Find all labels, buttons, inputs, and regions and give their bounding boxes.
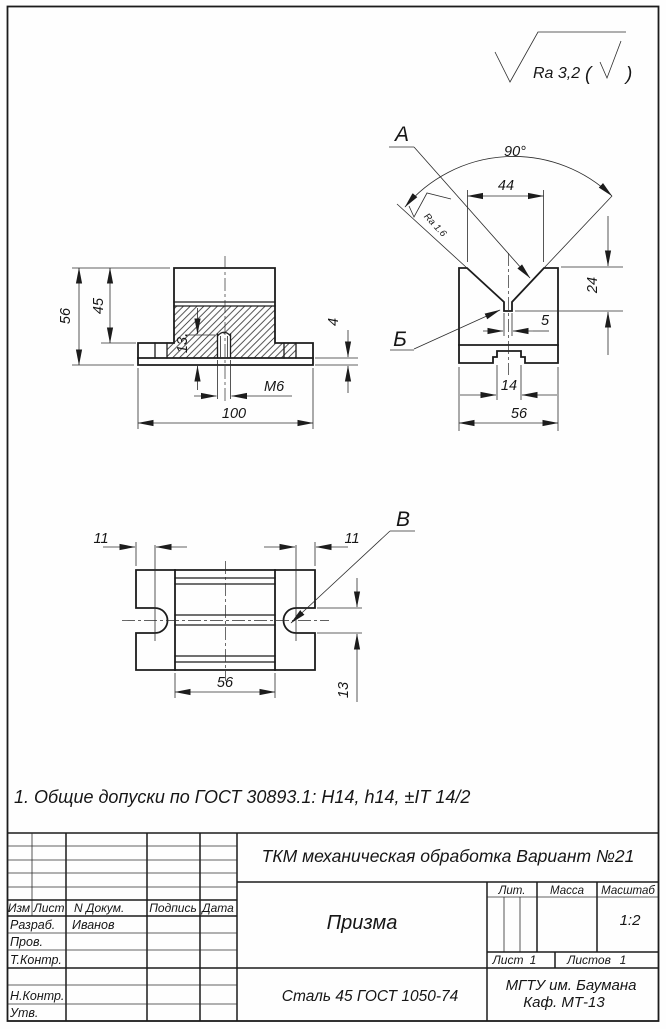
label-text: В <box>396 508 410 531</box>
dim-front-width: 100 <box>138 368 313 429</box>
dim-top-width: 56 <box>175 673 275 698</box>
department: Каф. МТ-13 <box>523 994 605 1011</box>
project-title: ТКМ механическая обработка Вариант №21 <box>262 846 635 866</box>
v-face-roughness: Ra 1.6 <box>409 193 451 240</box>
dim-text: 13 <box>336 682 352 698</box>
dim-front-body-height: 45 <box>91 268 136 343</box>
dim-relief-groove: 5 <box>483 313 550 336</box>
side-view: 90° 44 24 5 <box>389 123 623 431</box>
dim-text: 56 <box>217 675 234 691</box>
drawing-sheet: Ra 3,2 ( ) 56 <box>0 0 666 1029</box>
mass-label: Масса <box>550 885 584 897</box>
leader-line <box>291 531 390 623</box>
sheets-label: Листов <box>566 953 611 967</box>
dim-base-thickness: 4 <box>315 318 358 393</box>
dim-front-height: 56 <box>58 268 170 365</box>
dim-text: 56 <box>511 406 528 422</box>
leader-line <box>414 310 500 349</box>
title-block: Изм Лист N Докум. Подпись Дата Разраб. И… <box>8 833 659 1021</box>
material: Сталь 45 ГОСТ 1050-74 <box>282 988 459 1005</box>
col-sign: Подпись <box>149 901 197 915</box>
dim-text: 44 <box>498 178 514 194</box>
row-ncontrol: Н.Контр. <box>10 989 64 1003</box>
dim-top-slot-width: 13 <box>317 578 362 702</box>
scale-label: Масштаб <box>601 885 655 897</box>
row-checked: Пров. <box>10 935 43 949</box>
row-approved: Утв. <box>9 1006 38 1020</box>
general-roughness-mark: Ra 3,2 ( ) <box>495 32 632 85</box>
tolerance-note: 1. Общие допуски по ГОСТ 30893.1: H14, h… <box>14 787 470 807</box>
dim-text: 11 <box>344 531 359 547</box>
col-izm: Изм <box>8 901 30 915</box>
dim-text: M6 <box>264 379 285 395</box>
roughness-text: Ra 1.6 <box>421 211 449 239</box>
detail-label-v: В <box>291 508 415 623</box>
sheet-frame <box>8 7 659 1022</box>
row-developed: Разраб. <box>10 918 55 932</box>
dim-text: 11 <box>93 531 108 547</box>
drawing-canvas: Ra 3,2 ( ) 56 <box>0 0 666 1029</box>
top-view: 11 11 56 13 В <box>93 508 415 702</box>
label-text: А <box>393 123 409 146</box>
sheet-value: 1 <box>530 953 537 967</box>
scale-value: 1:2 <box>620 912 642 929</box>
sheet-label: Лист <box>492 953 524 967</box>
dim-text: 24 <box>585 277 601 294</box>
dim-text: 90° <box>504 144 526 160</box>
col-doc: N Докум. <box>74 901 124 915</box>
row-tcontrol: Т.Контр. <box>10 953 62 967</box>
front-view: 56 45 13. 4 M6 <box>58 256 358 429</box>
m6-hole <box>218 332 231 358</box>
col-list: Лист <box>33 901 65 915</box>
col-date: Дата <box>200 901 234 915</box>
dim-side-width: 56 <box>459 367 558 431</box>
dim-text: 4 <box>326 318 342 326</box>
roughness-paren-close: ) <box>624 64 632 85</box>
roughness-small-check-icon <box>600 41 621 78</box>
developer-name: Иванов <box>72 918 115 932</box>
dim-text: 100 <box>222 406 246 422</box>
organization: МГТУ им. Баумана <box>506 977 637 994</box>
extension-line <box>544 196 612 268</box>
dim-text: 5 <box>541 313 550 329</box>
dim-v-depth: 24 <box>515 216 623 355</box>
label-text: Б <box>393 328 407 351</box>
sheets-value: 1 <box>620 953 627 967</box>
dim-text: 14 <box>501 378 517 394</box>
lit-label: Лит. <box>498 885 526 897</box>
dim-slot-depth-right: 11 <box>264 531 360 566</box>
dim-text: 13. <box>175 333 191 353</box>
part-name: Призма <box>327 912 398 934</box>
roughness-paren-open: ( <box>585 64 593 85</box>
general-roughness-value: Ra 3,2 <box>533 65 580 82</box>
dim-text: 45 <box>91 297 107 314</box>
dim-text: 56 <box>58 307 74 324</box>
dim-slot-depth-left: 11 <box>93 531 187 566</box>
